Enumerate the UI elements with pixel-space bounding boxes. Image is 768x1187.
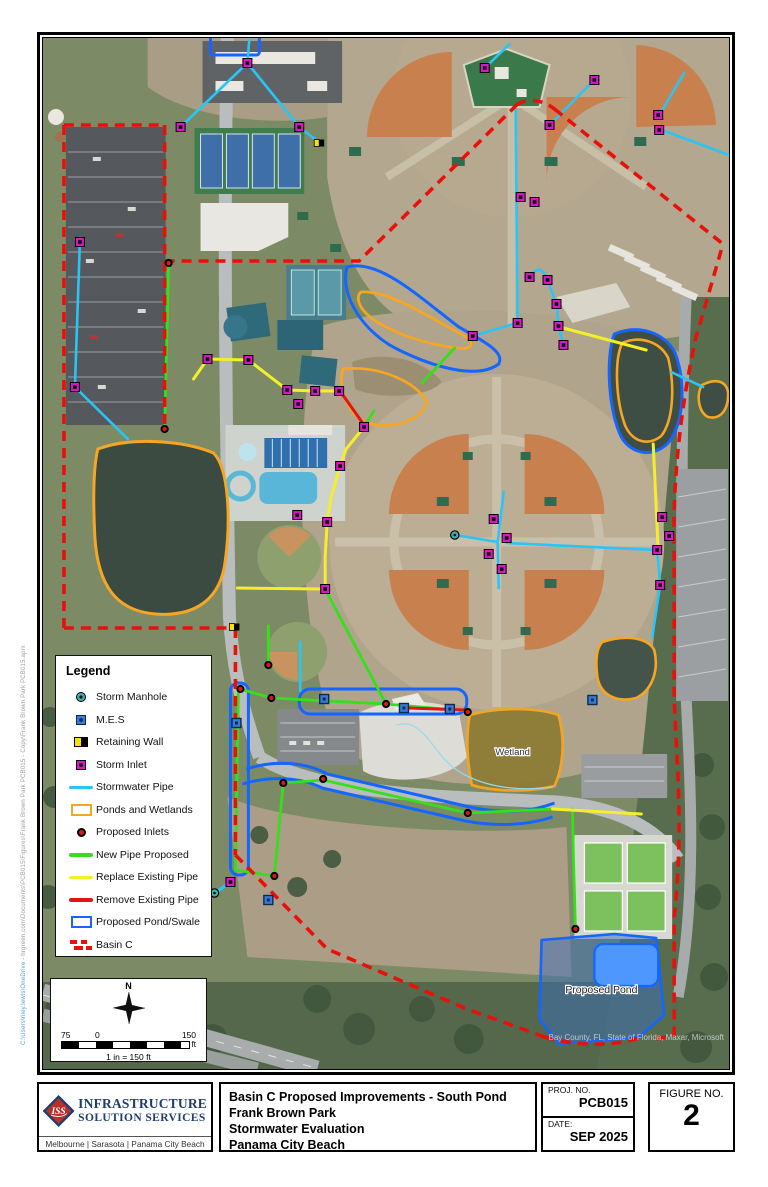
legend-swatch-icon xyxy=(66,715,96,725)
basemap-attribution: Bay County, FL, State of Florida, Maxar,… xyxy=(549,1033,725,1042)
company-name: INFRASTRUCTURE SOLUTION SERVICES xyxy=(78,1097,207,1124)
iss-logo-icon: ISS xyxy=(43,1089,74,1133)
legend-item-label: Basin C xyxy=(96,939,133,951)
title-line-1: Basin C Proposed Improvements - South Po… xyxy=(229,1089,527,1105)
legend-item-label: Remove Existing Pipe xyxy=(96,894,199,906)
figure-page: { "map": { "labels": { "wetland": "Wetla… xyxy=(0,0,768,1187)
date-label: DATE: xyxy=(548,1119,628,1129)
title-line-2: Frank Brown Park xyxy=(229,1105,527,1121)
company-locations: Melbourne | Sarasota | Panama City Beach xyxy=(39,1136,211,1150)
legend-swatch-icon xyxy=(66,916,96,928)
wetland-label: Wetland xyxy=(495,747,530,758)
drawing-title-block: Basin C Proposed Improvements - South Po… xyxy=(219,1082,537,1152)
legend-item: Storm Inlet xyxy=(66,754,205,777)
legend-swatch-icon xyxy=(66,760,96,770)
scale-zero-value: 0 xyxy=(95,1030,182,1040)
legend-item: Proposed Pond/Swale xyxy=(66,911,205,934)
legend-title: Legend xyxy=(66,664,205,678)
legend-swatch-icon xyxy=(66,828,96,837)
legend-swatch-icon xyxy=(66,804,96,816)
legend-item-label: Retaining Wall xyxy=(96,736,163,748)
legend-swatch-icon xyxy=(66,786,96,790)
project-info-block: PROJ. NO. PCB015 DATE: SEP 2025 xyxy=(541,1082,635,1152)
scale-ratio: 1 in = 150 ft xyxy=(61,1052,196,1062)
project-number-value: PCB015 xyxy=(548,1095,628,1110)
legend-item-label: M.E.S xyxy=(96,714,125,726)
title-line-4: Panama City Beach xyxy=(229,1137,527,1153)
legend-item: Retaining Wall xyxy=(66,731,205,754)
legend-item-label: Storm Inlet xyxy=(96,759,147,771)
company-name-line1: INFRASTRUCTURE xyxy=(78,1097,207,1112)
file-path-text: C:\Users\riley.lewis\OneDrive - hrgreen.… xyxy=(21,585,27,1045)
legend-item: Storm Manhole xyxy=(66,686,205,709)
legend-item-label: Proposed Pond/Swale xyxy=(96,916,200,928)
legend-panel: Legend Storm Manhole M.E.S Retaining Wal… xyxy=(55,655,212,957)
legend-item-label: Stormwater Pipe xyxy=(96,781,174,793)
date-value: SEP 2025 xyxy=(548,1129,628,1144)
project-number-label: PROJ. NO. xyxy=(548,1085,628,1095)
legend-item: New Pipe Proposed xyxy=(66,844,205,867)
legend-item: Stormwater Pipe xyxy=(66,776,205,799)
scale-unit: ft xyxy=(192,1040,196,1049)
legend-swatch-icon xyxy=(66,898,96,902)
legend-item: M.E.S xyxy=(66,709,205,732)
north-arrow-icon xyxy=(109,991,149,1025)
legend-swatch-icon xyxy=(66,692,96,702)
legend-swatch-icon xyxy=(66,940,96,950)
project-number-cell: PROJ. NO. PCB015 xyxy=(543,1084,633,1116)
title-line-3: Stormwater Evaluation xyxy=(229,1121,527,1137)
figure-number-block: FIGURE NO. 2 xyxy=(648,1082,735,1152)
legend-item: Basin C xyxy=(66,934,205,957)
north-arrow: N xyxy=(61,982,196,1029)
legend-item: Remove Existing Pipe xyxy=(66,889,205,912)
file-path-tail: - hrgreen.com\Documents\PCB015\Figures\F… xyxy=(21,645,27,962)
scale-bar xyxy=(61,1041,190,1049)
proposed-pond-label: Proposed Pond xyxy=(565,985,637,996)
legend-swatch-icon xyxy=(66,853,96,857)
scale-numbers: 75 0 150 xyxy=(61,1030,196,1040)
legend-swatch-icon xyxy=(66,737,96,747)
legend-item: Replace Existing Pipe xyxy=(66,866,205,889)
date-cell: DATE: SEP 2025 xyxy=(543,1116,633,1150)
legend-item-label: Proposed Inlets xyxy=(96,826,169,838)
company-logo-block: ISS INFRASTRUCTURE SOLUTION SERVICES Mel… xyxy=(37,1082,213,1152)
file-path-head: C:\Users\riley.lewis\OneDrive xyxy=(21,962,27,1045)
legend-swatch-icon xyxy=(66,876,96,880)
north-label: N xyxy=(61,982,196,991)
legend-item-label: Replace Existing Pipe xyxy=(96,871,198,883)
legend-item-label: Storm Manhole xyxy=(96,691,167,703)
company-name-line2: SOLUTION SERVICES xyxy=(78,1112,207,1125)
legend-item-label: Ponds and Wetlands xyxy=(96,804,193,816)
legend-item: Proposed Inlets xyxy=(66,821,205,844)
legend-item-label: New Pipe Proposed xyxy=(96,849,189,861)
scale-left-value: 75 xyxy=(61,1030,95,1040)
scale-bar-panel: N 75 0 150 ft 1 in = 150 ft xyxy=(50,978,207,1062)
scale-right-value: 150 xyxy=(182,1030,196,1040)
legend-item: Ponds and Wetlands xyxy=(66,799,205,822)
figure-number-value: 2 xyxy=(652,1100,731,1132)
